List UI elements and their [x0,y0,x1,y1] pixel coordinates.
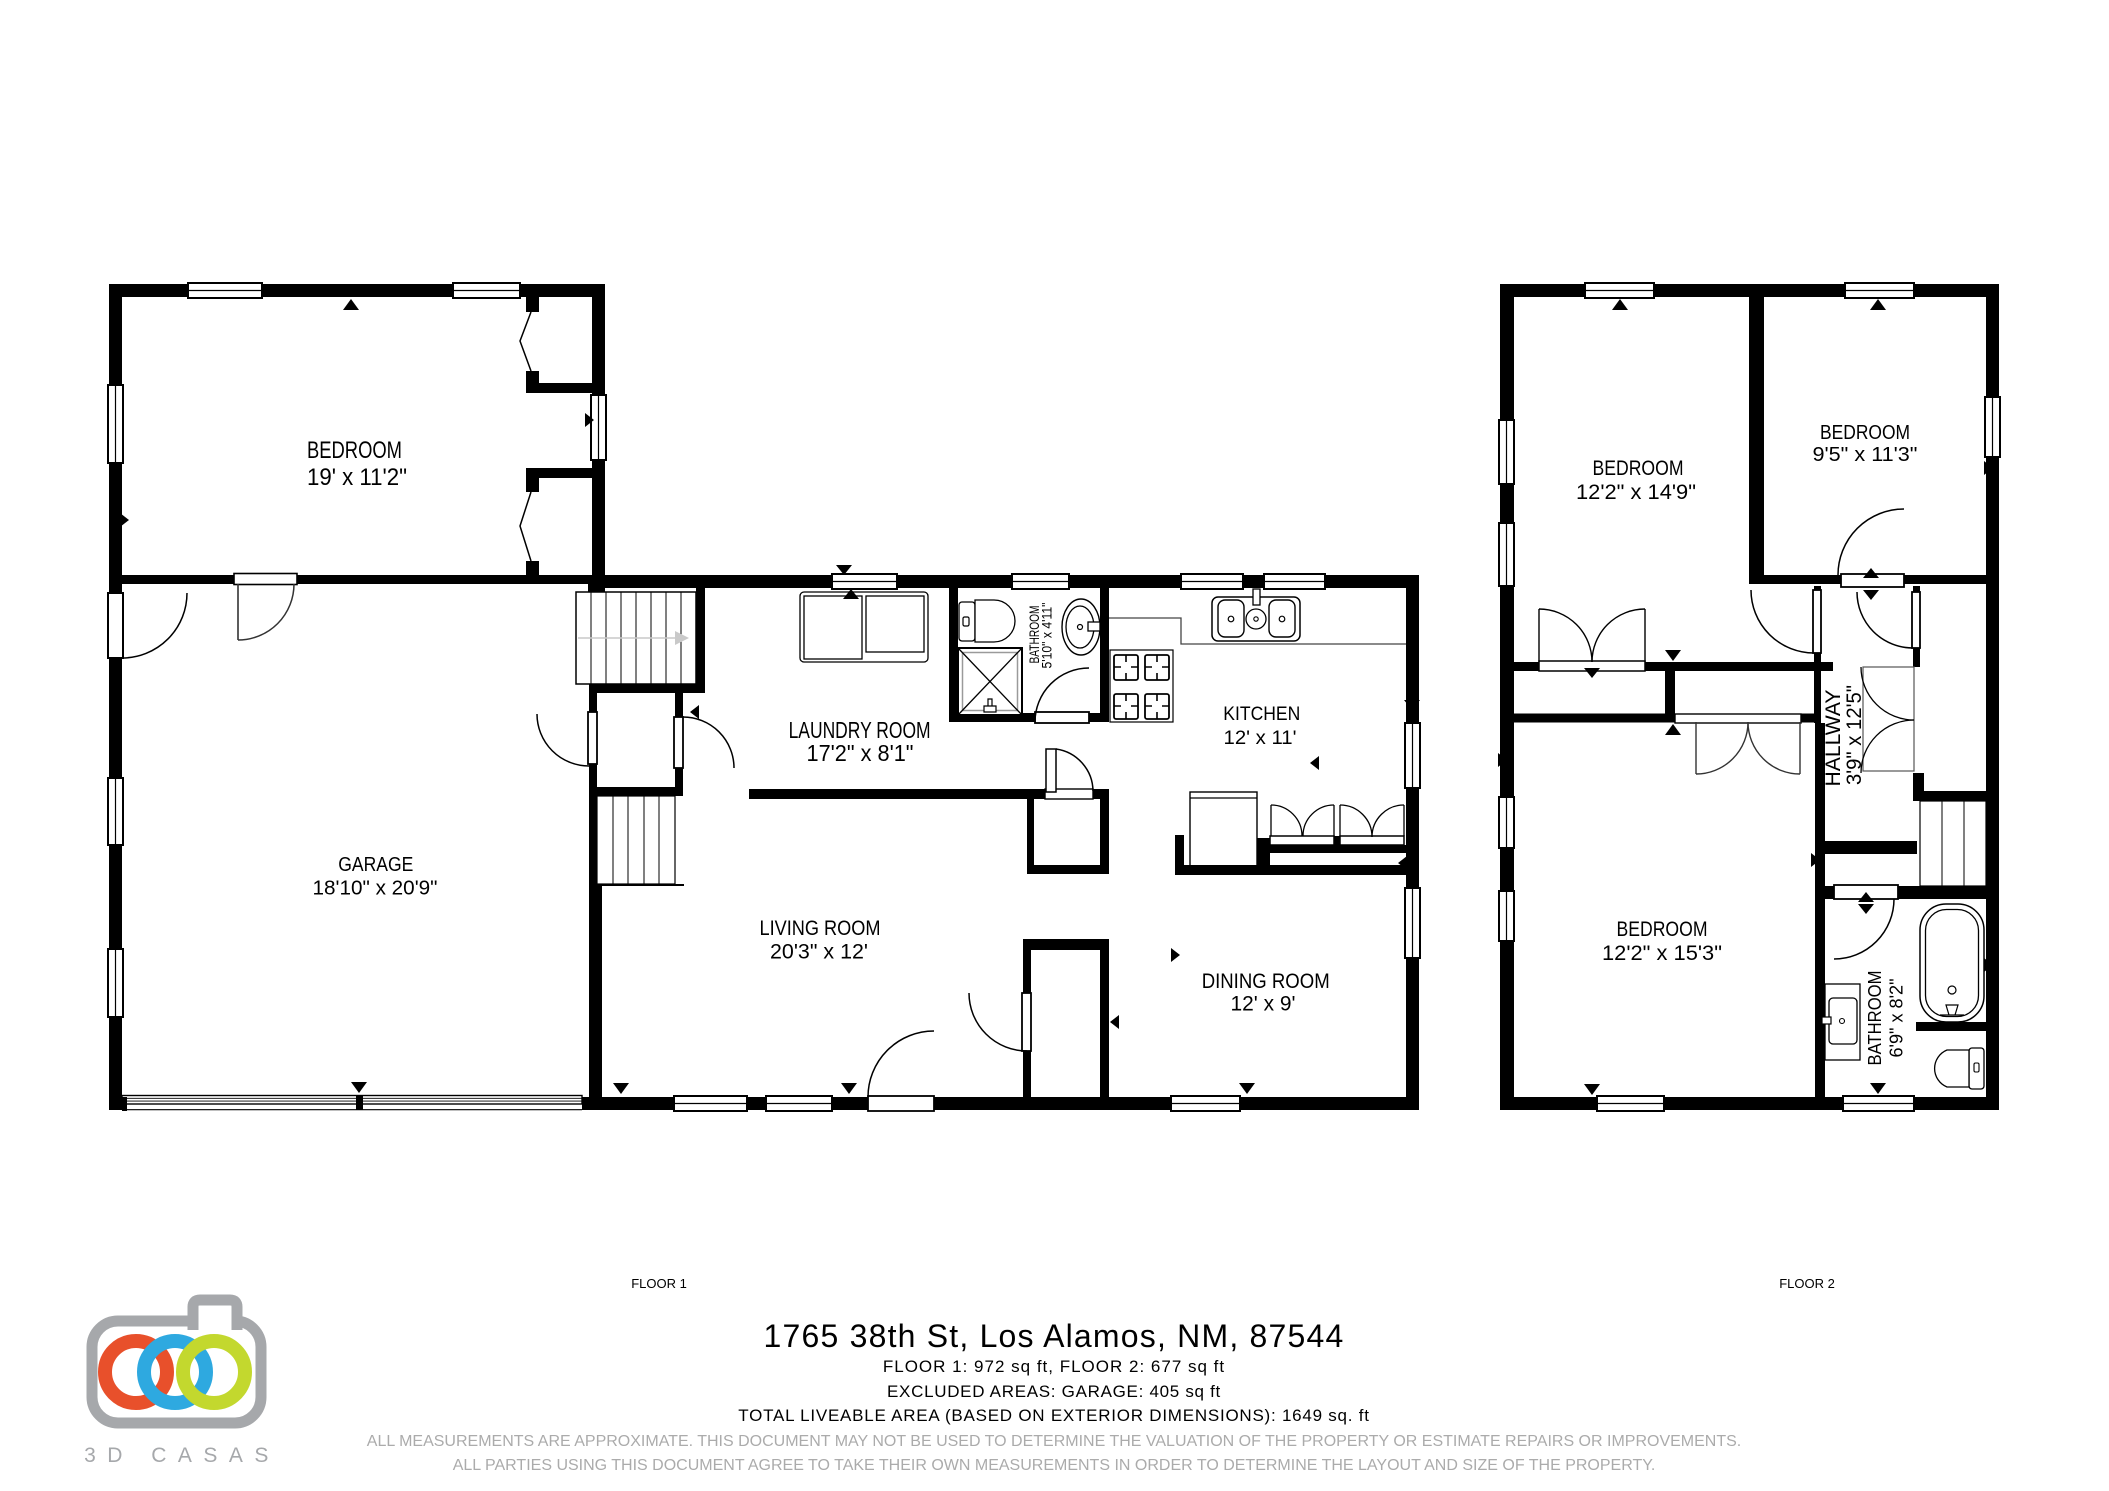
svg-text:ALL MEASUREMENTS ARE APPROXIMA: ALL MEASUREMENTS ARE APPROXIMATE. THIS D… [367,1433,1741,1450]
svg-text:19' x 11'2": 19' x 11'2" [307,464,407,491]
svg-text:KITCHEN: KITCHEN [1223,703,1300,725]
svg-text:12'2" x 14'9": 12'2" x 14'9" [1576,480,1696,504]
svg-text:3D CASAS: 3D CASAS [84,1444,280,1467]
svg-text:FLOOR 2: FLOOR 2 [1779,1276,1835,1291]
svg-text:BEDROOM: BEDROOM [307,437,402,464]
svg-text:17'2" x 8'1": 17'2" x 8'1" [807,740,914,766]
svg-text:5'10" x 4'11": 5'10" x 4'11" [1040,602,1055,668]
svg-text:9'5" x 11'3": 9'5" x 11'3" [1813,444,1918,466]
svg-text:18'10" x 20'9": 18'10" x 20'9" [313,878,438,900]
svg-text:ALL PARTIES USING THIS DOCUMEN: ALL PARTIES USING THIS DOCUMENT AGREE TO… [453,1457,1656,1474]
svg-text:BEDROOM: BEDROOM [1593,456,1684,480]
svg-text:BEDROOM: BEDROOM [1617,917,1708,941]
svg-text:FLOOR 1: 972 sq ft, FLOOR 2: 6: FLOOR 1: 972 sq ft, FLOOR 2: 677 sq ft [883,1357,1225,1376]
svg-text:TOTAL LIVEABLE AREA (BASED ON: TOTAL LIVEABLE AREA (BASED ON EXTERIOR D… [738,1406,1369,1425]
svg-text:3'9" x 12'5": 3'9" x 12'5" [1843,685,1866,785]
svg-text:FLOOR 1: FLOOR 1 [631,1276,687,1291]
svg-text:LIVING ROOM: LIVING ROOM [760,917,881,940]
svg-text:12'2" x 15'3": 12'2" x 15'3" [1602,941,1722,965]
svg-text:GARAGE: GARAGE [338,854,413,876]
svg-text:1765 38th St, Los Alamos, NM,: 1765 38th St, Los Alamos, NM, 87544 [764,1318,1345,1354]
svg-text:BEDROOM: BEDROOM [1820,422,1910,444]
svg-text:BATHROOM: BATHROOM [1865,971,1885,1066]
svg-text:EXCLUDED AREAS: GARAGE: 405 sq: EXCLUDED AREAS: GARAGE: 405 sq ft [887,1382,1221,1401]
svg-text:6'9" x 8'2": 6'9" x 8'2" [1887,979,1907,1058]
svg-text:HALLWAY: HALLWAY [1822,690,1845,787]
svg-text:12' x 11': 12' x 11' [1224,727,1297,749]
svg-text:20'3" x 12': 20'3" x 12' [770,941,868,964]
svg-text:12' x 9': 12' x 9' [1231,993,1296,1016]
svg-text:DINING ROOM: DINING ROOM [1202,970,1330,993]
